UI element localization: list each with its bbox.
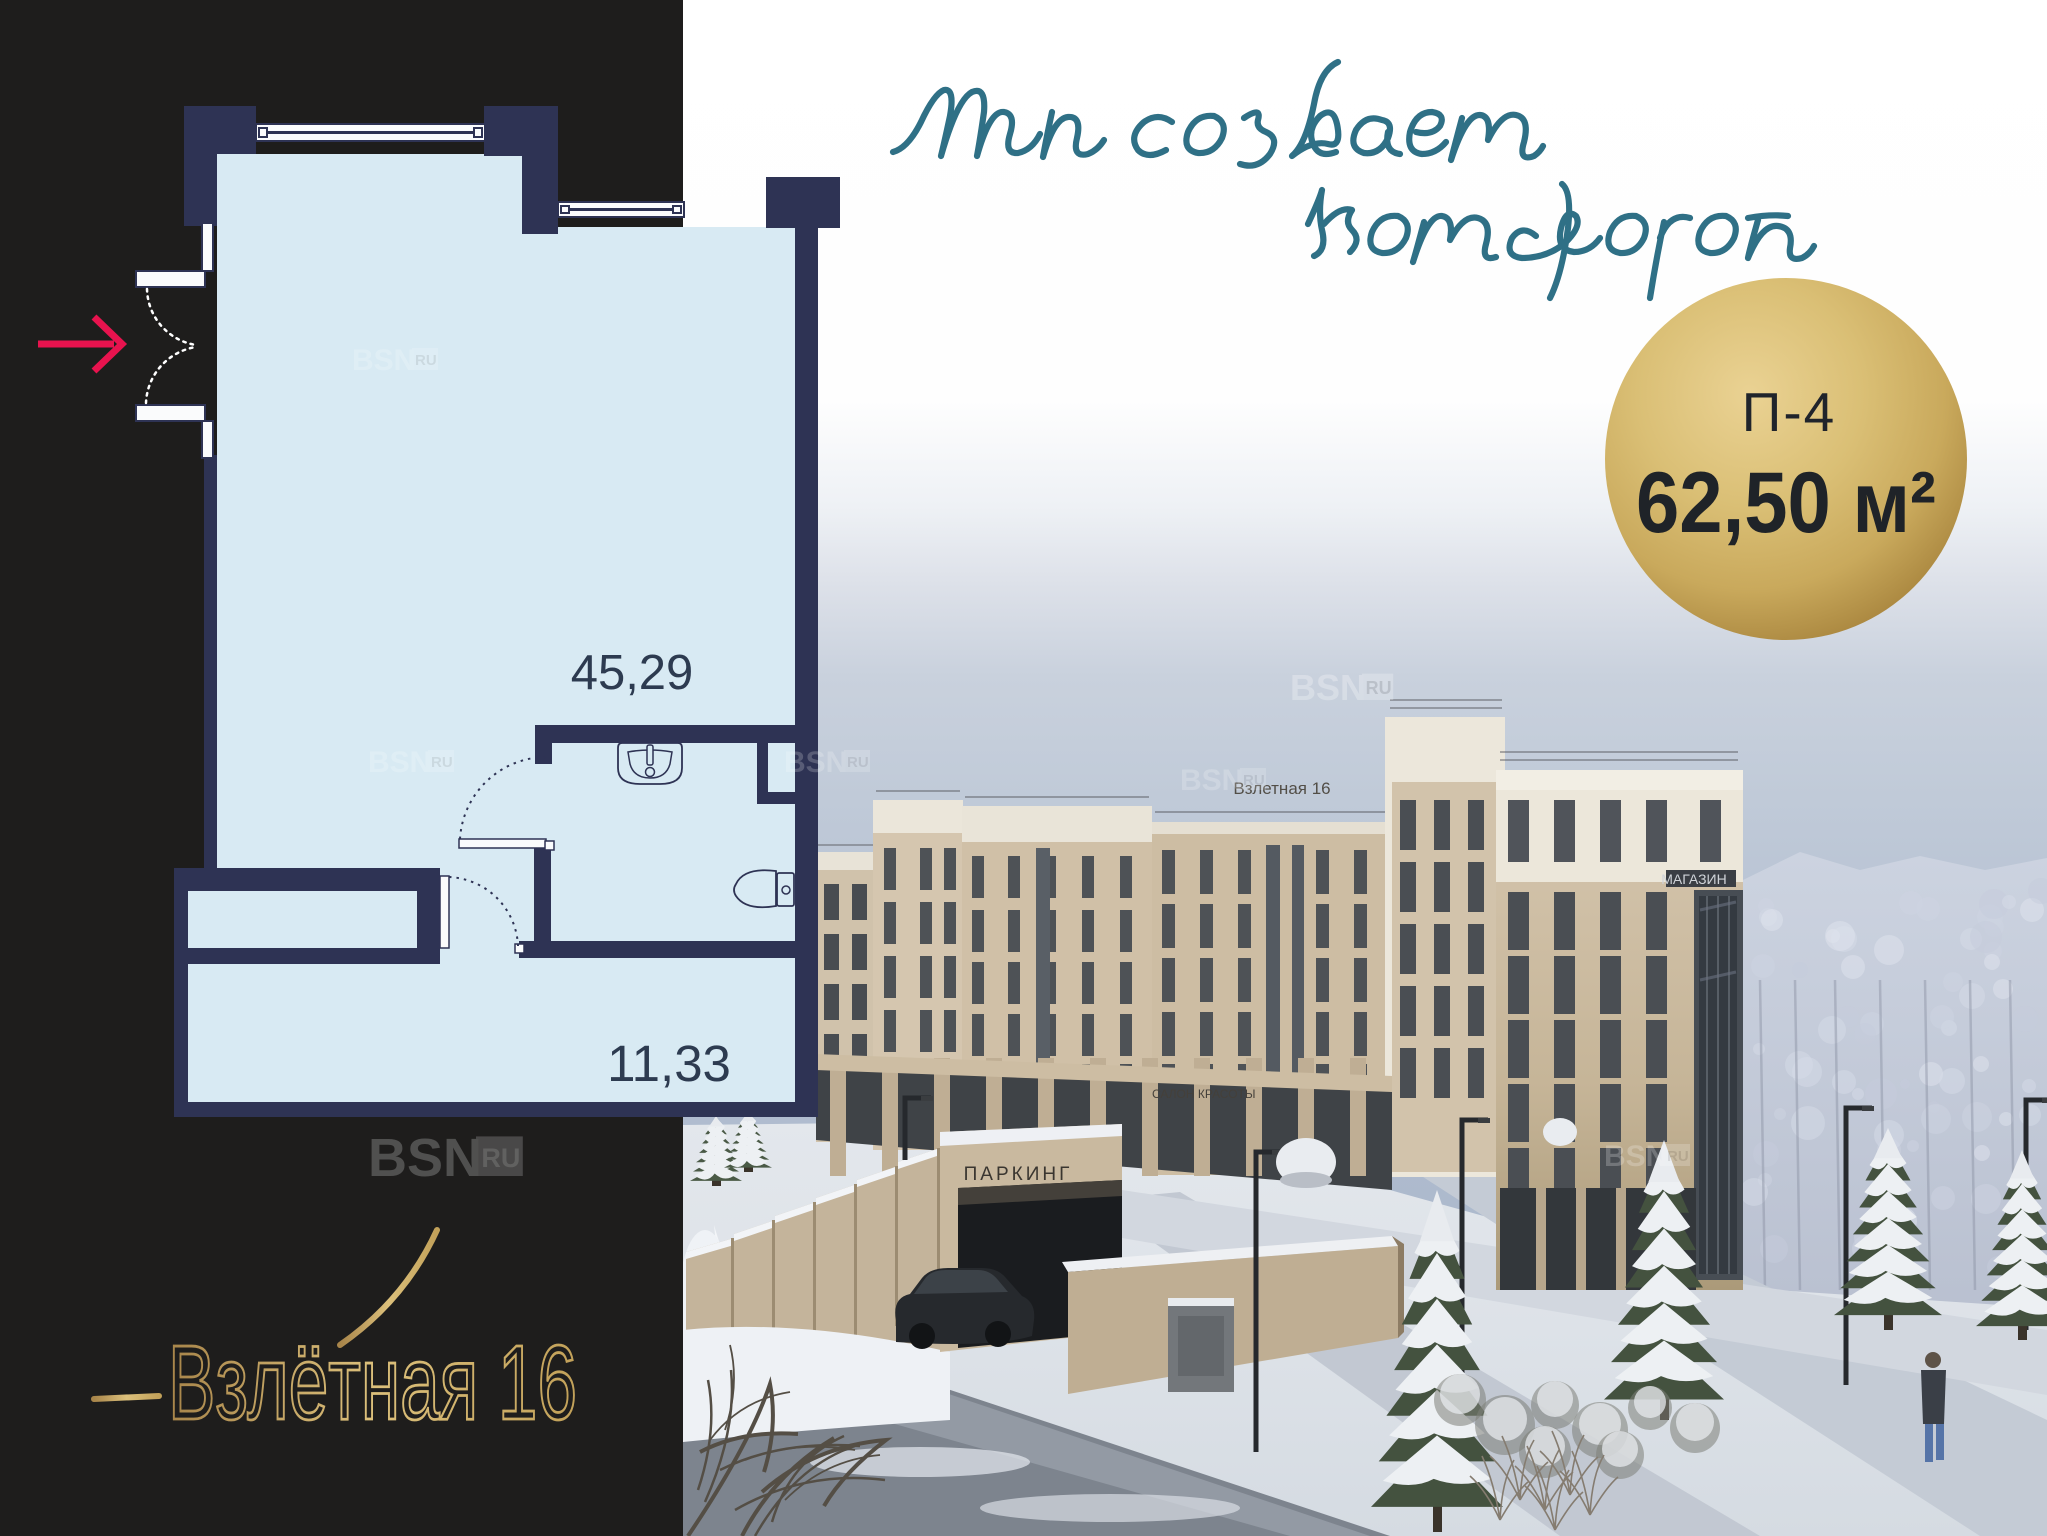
svg-text:ПАРКИНГ: ПАРКИНГ bbox=[964, 1164, 1073, 1185]
svg-text:62,50 м²: 62,50 м² bbox=[1636, 455, 1936, 551]
svg-text:11,33: 11,33 bbox=[607, 1035, 731, 1092]
svg-text:RU: RU bbox=[1243, 772, 1265, 789]
svg-text:BSN: BSN bbox=[368, 746, 431, 779]
svg-text:RU: RU bbox=[1667, 1148, 1689, 1165]
svg-text:45,29: 45,29 bbox=[571, 646, 694, 700]
svg-text:П-4: П-4 bbox=[1742, 381, 1836, 443]
svg-text:BSN: BSN bbox=[352, 344, 415, 377]
svg-text:RU: RU bbox=[415, 352, 437, 369]
svg-text:RU: RU bbox=[481, 1143, 520, 1173]
svg-text:BSN: BSN bbox=[1604, 1140, 1667, 1173]
svg-text:RU: RU bbox=[431, 754, 453, 771]
svg-text:МАГАЗИН: МАГАЗИН bbox=[1661, 871, 1726, 887]
svg-text:RU: RU bbox=[1366, 678, 1392, 698]
svg-text:BSN: BSN bbox=[1180, 764, 1243, 797]
svg-text:BSN: BSN bbox=[1290, 667, 1366, 708]
svg-text:САЛОН КРАСОТЫ: САЛОН КРАСОТЫ bbox=[1152, 1087, 1256, 1101]
svg-text:BSN: BSN bbox=[784, 746, 847, 779]
svg-text:Взлётная 16: Взлётная 16 bbox=[168, 1324, 577, 1442]
svg-text:RU: RU bbox=[847, 754, 869, 771]
svg-text:BSN: BSN bbox=[368, 1128, 482, 1188]
